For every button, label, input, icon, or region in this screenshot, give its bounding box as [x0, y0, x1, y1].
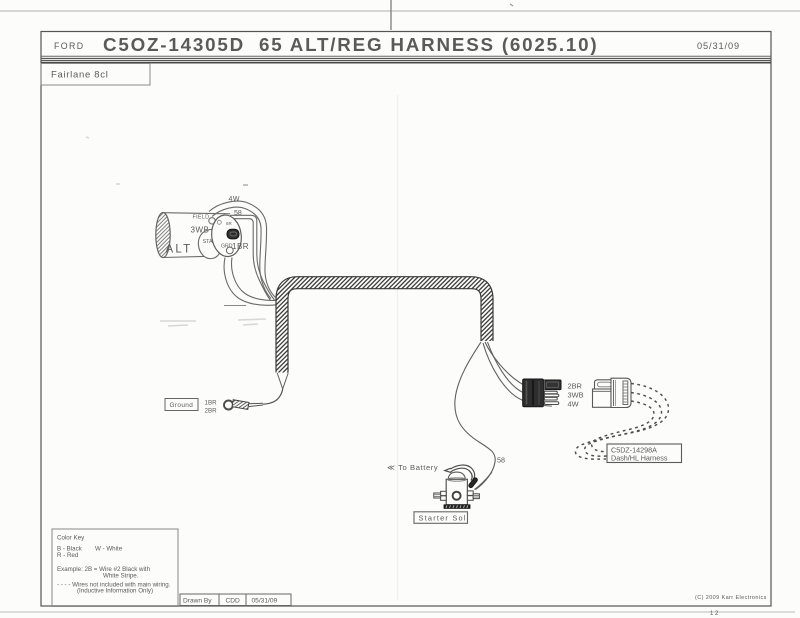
svg-text:2BR: 2BR [205, 407, 218, 414]
svg-text:3WB: 3WB [191, 226, 210, 235]
svg-text:4W: 4W [229, 196, 241, 203]
svg-text:1 2: 1 2 [710, 611, 719, 617]
svg-text:Drawn By: Drawn By [183, 597, 212, 604]
svg-text:05/31/09: 05/31/09 [697, 41, 740, 51]
svg-text:1BR: 1BR [232, 242, 249, 251]
svg-text:ALT: ALT [166, 244, 193, 256]
svg-text:Dash/HL Harness: Dash/HL Harness [611, 454, 668, 463]
svg-text:58: 58 [497, 455, 505, 464]
svg-text:STA: STA [203, 239, 213, 245]
svg-text:≪ To Battery: ≪ To Battery [387, 463, 438, 472]
svg-text:CDD: CDD [226, 597, 241, 604]
svg-text:Starter Sol: Starter Sol [419, 513, 467, 522]
svg-text:Fairlane 8cl: Fairlane 8cl [51, 70, 109, 81]
svg-text:(C) 2009 Karr Electronics: (C) 2009 Karr Electronics [695, 595, 767, 601]
svg-text:2BR: 2BR [568, 381, 582, 390]
svg-text:58: 58 [234, 210, 242, 217]
svg-text:R - Red: R - Red [57, 552, 79, 559]
svg-text:Ground: Ground [170, 402, 194, 409]
svg-text:C5OZ-14305D 65 ALT/REG HARNES: C5OZ-14305D 65 ALT/REG HARNESS (6025.10) [103, 34, 598, 55]
svg-text:3WB: 3WB [568, 390, 584, 399]
svg-text:FORD: FORD [54, 41, 85, 51]
svg-text:1BR: 1BR [205, 399, 218, 406]
svg-text:GRD: GRD [221, 244, 233, 250]
svg-text:05/31/09: 05/31/09 [252, 597, 278, 604]
svg-text:(Inductive Information Only): (Inductive Information Only) [77, 588, 153, 595]
svg-text:White Stripe.: White Stripe. [103, 573, 139, 580]
svg-text:W - White: W - White [95, 546, 123, 553]
svg-text:6R: 6R [226, 221, 233, 226]
svg-text:4W: 4W [568, 399, 579, 408]
svg-text:Color Key: Color Key [57, 535, 85, 542]
svg-text:FIELD: FIELD [193, 215, 210, 221]
